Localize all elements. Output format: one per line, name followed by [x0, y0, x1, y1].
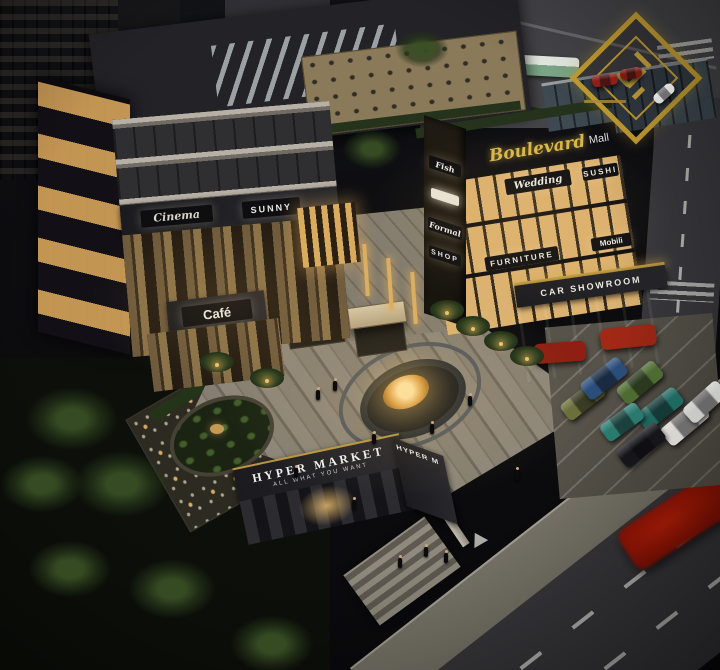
lit-bush — [250, 368, 284, 388]
lit-bush — [200, 352, 234, 372]
garden-pot — [210, 424, 224, 434]
pedestrian — [333, 381, 337, 391]
palm-tree — [26, 387, 118, 451]
lit-bush — [510, 346, 544, 366]
pedestrian — [424, 547, 428, 557]
west-facade — [38, 77, 130, 355]
fish-sign: Fish — [429, 155, 461, 178]
pedestrian — [468, 396, 472, 406]
palm-tree — [0, 455, 84, 513]
kiosk — [347, 300, 409, 357]
atrium-portal — [297, 202, 361, 268]
lit-bush — [456, 316, 490, 336]
lit-sign — [431, 187, 459, 206]
tower-side-facade: Fish Formal SHOP — [424, 115, 466, 327]
palm-tree — [230, 615, 314, 670]
palm-tree — [74, 451, 171, 518]
shop-sign: SHOP — [429, 245, 461, 267]
yield-triangle — [468, 529, 488, 548]
scene: Cinema SUNNY Café Boulevard Mall Wedding… — [0, 0, 720, 670]
logo-caption-text — [584, 100, 626, 103]
palm-tree — [128, 559, 216, 620]
showroom-car — [599, 324, 657, 351]
lit-bush — [484, 331, 518, 351]
pedestrian — [352, 500, 356, 510]
palm-tree — [343, 129, 402, 170]
pedestrian — [398, 558, 402, 568]
lit-bush — [430, 300, 464, 320]
sushi-sign: SUSHI — [581, 163, 619, 181]
pedestrian — [372, 434, 376, 444]
formal-sign: Formal — [428, 216, 462, 240]
wedding-sign: Wedding — [504, 169, 572, 195]
palm-tree — [28, 540, 112, 598]
pedestrian — [430, 424, 434, 434]
cinema-sign: Cinema — [140, 205, 213, 228]
pedestrian — [294, 468, 298, 478]
pedestrian — [444, 553, 448, 563]
pedestrian — [515, 470, 519, 480]
palm-tree — [395, 30, 450, 68]
pedestrian — [316, 390, 320, 400]
sunny-sign: SUNNY — [242, 197, 301, 219]
